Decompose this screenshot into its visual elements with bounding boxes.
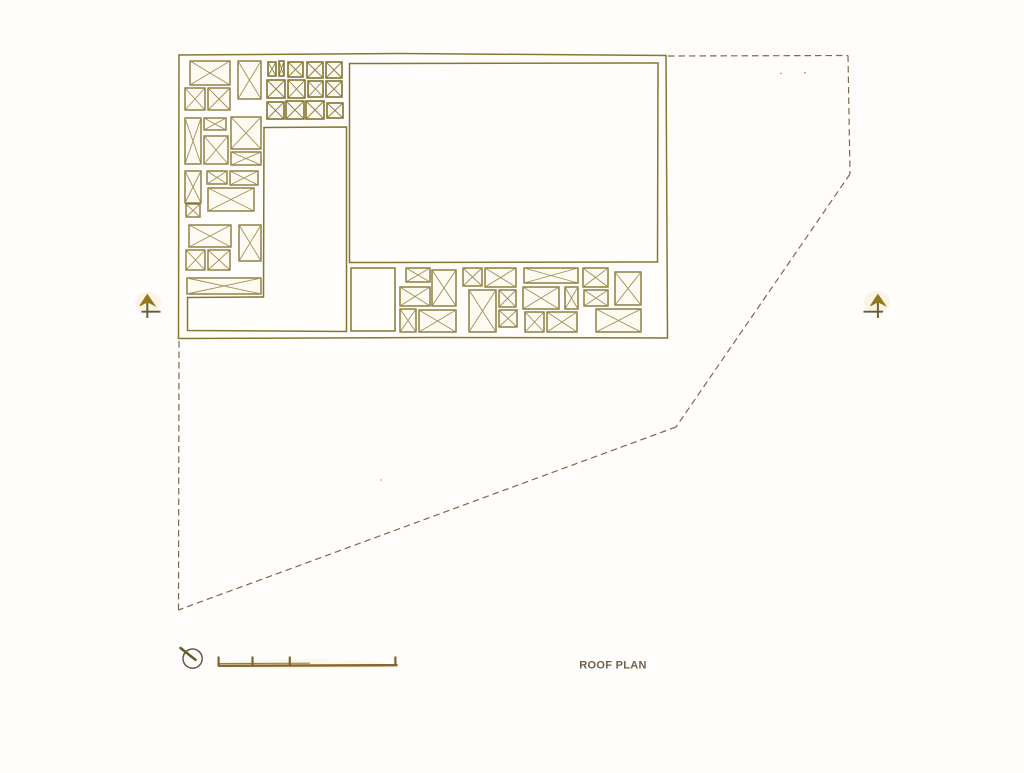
svg-text:ROOF PLAN: ROOF PLAN xyxy=(579,660,646,672)
